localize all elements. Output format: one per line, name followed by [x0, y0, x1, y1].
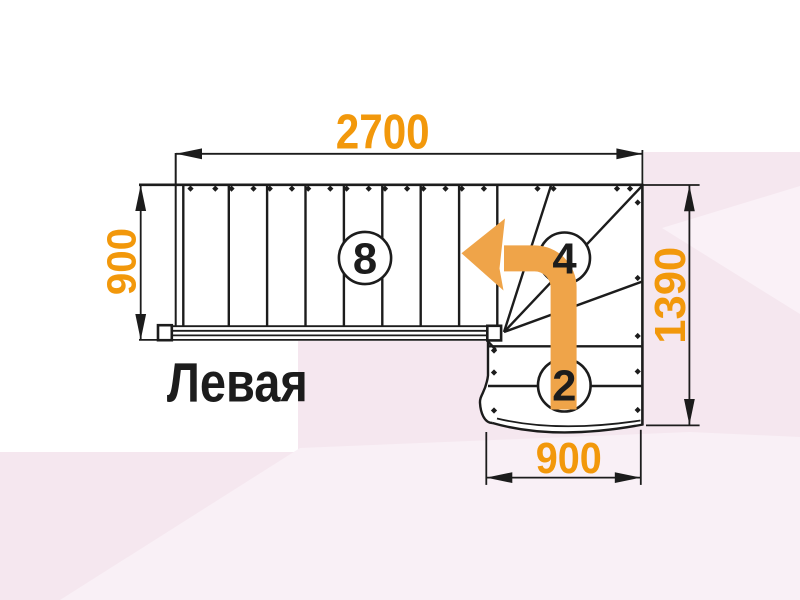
svg-text:8: 8: [353, 235, 377, 284]
svg-text:1390: 1390: [646, 247, 695, 344]
svg-text:900: 900: [536, 433, 602, 482]
svg-text:4: 4: [552, 235, 577, 284]
svg-text:2700: 2700: [336, 103, 430, 159]
svg-text:Левая: Левая: [167, 351, 308, 414]
svg-text:900: 900: [98, 228, 144, 295]
svg-text:2: 2: [552, 362, 576, 411]
